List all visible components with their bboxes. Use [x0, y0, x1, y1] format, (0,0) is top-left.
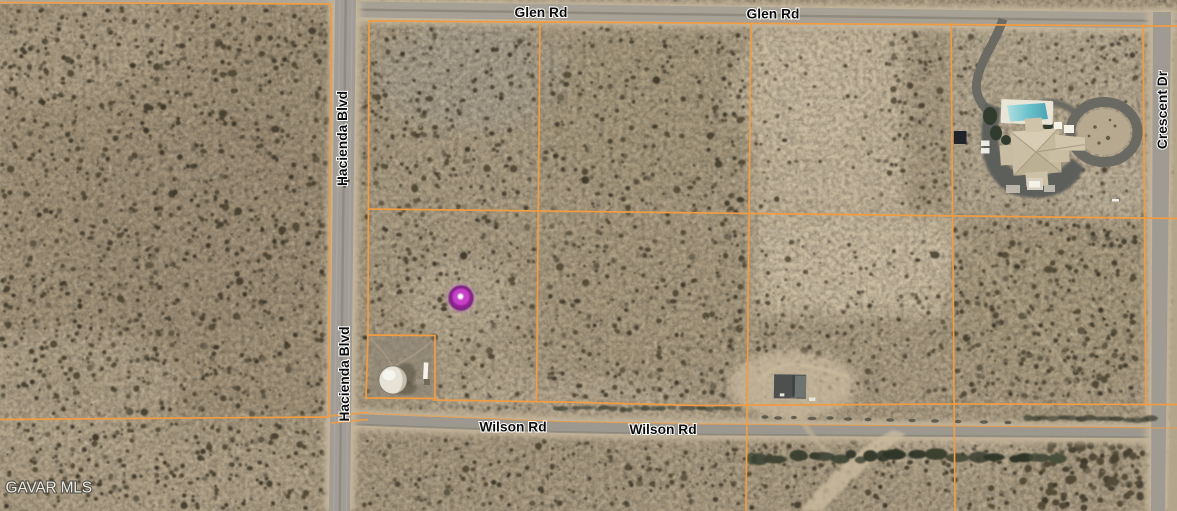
svg-text:Crescent Dr: Crescent Dr — [1155, 70, 1170, 149]
svg-text:Glen Rd: Glen Rd — [747, 7, 800, 22]
svg-text:Hacienda Blvd: Hacienda Blvd — [337, 326, 352, 421]
svg-text:GAVAR MLS: GAVAR MLS — [6, 480, 92, 497]
svg-text:Hacienda Blvd: Hacienda Blvd — [335, 91, 350, 186]
svg-text:Wilson Rd: Wilson Rd — [479, 420, 546, 435]
svg-text:Glen Rd: Glen Rd — [515, 5, 568, 20]
svg-text:Wilson Rd: Wilson Rd — [629, 422, 696, 437]
